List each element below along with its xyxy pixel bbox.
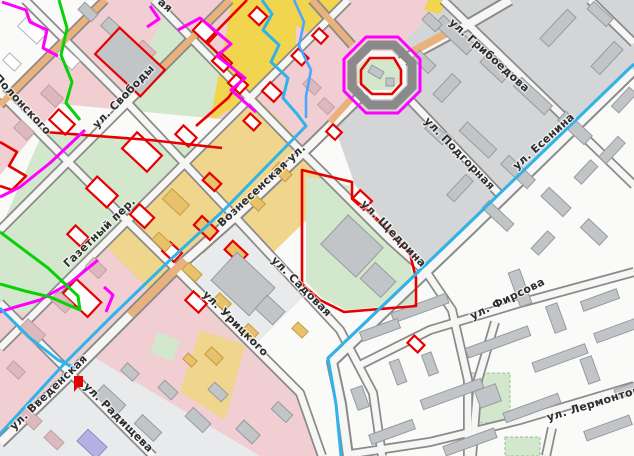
plaza-roundabout [344,37,420,113]
zone-park-bottom [505,437,540,456]
map-viewport: ул. Грибоедова ул. Подгорная ул. Есенина… [0,0,634,456]
building [386,78,394,86]
city-map[interactable]: ул. Грибоедова ул. Подгорная ул. Есенина… [0,0,634,456]
